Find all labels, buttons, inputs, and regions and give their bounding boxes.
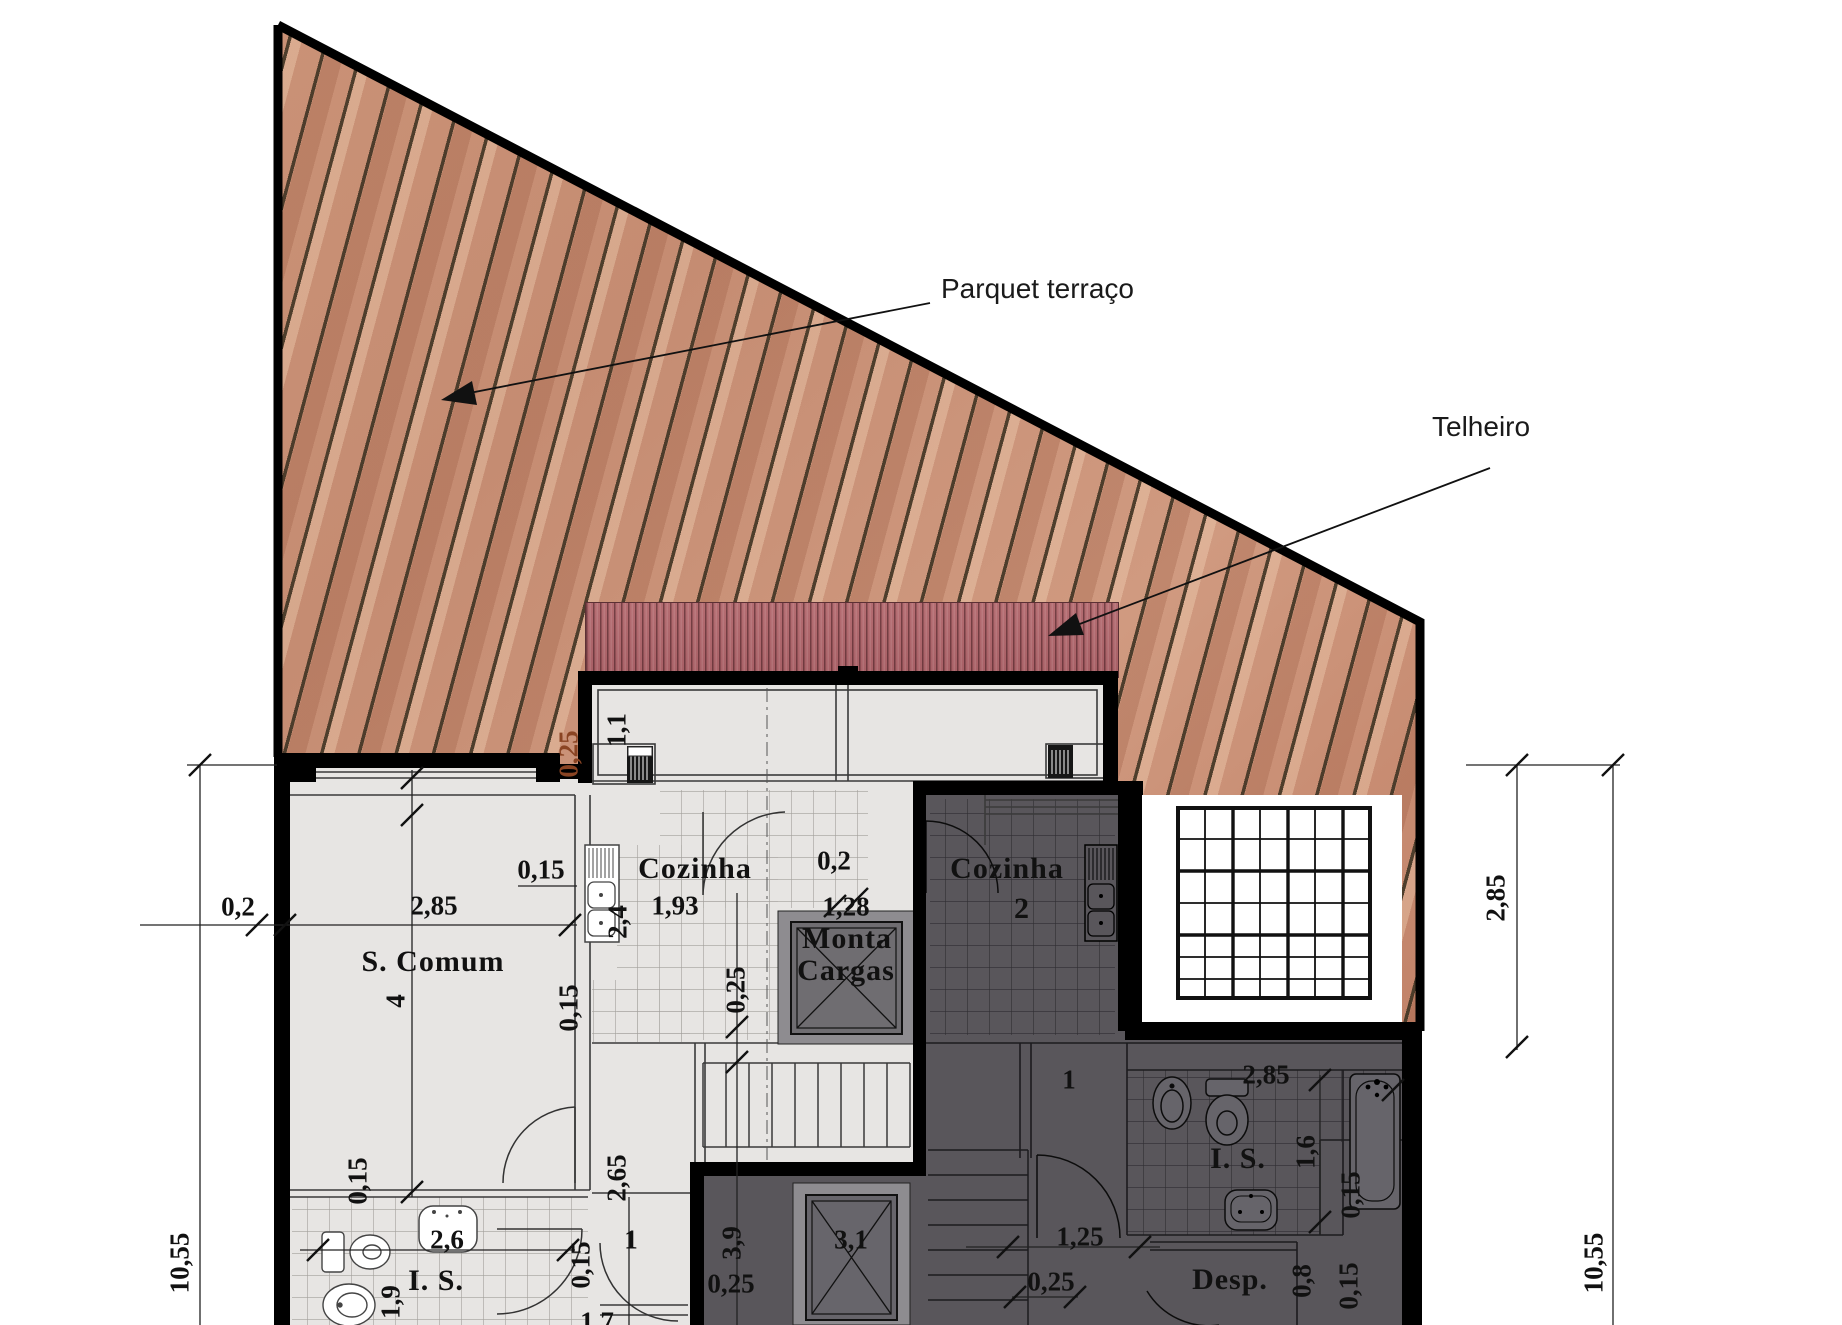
dimension-label: 1,93 bbox=[651, 893, 698, 920]
dimension-label: 2,65 bbox=[604, 1154, 631, 1201]
dimension-label: 2,6 bbox=[430, 1227, 464, 1254]
dimension-label: 10,55 bbox=[1581, 1233, 1608, 1294]
dimension-label: 1,28 bbox=[822, 894, 869, 921]
dimension-label: 1 bbox=[624, 1227, 638, 1254]
dimension-label: 2,4 bbox=[605, 905, 632, 939]
dimension-label: 1,7 bbox=[580, 1309, 614, 1325]
dimension-label: 0,15 bbox=[517, 857, 564, 884]
dimension-label: 0,2 bbox=[817, 848, 851, 875]
dimension-label: 1,6 bbox=[1293, 1135, 1320, 1169]
label-layer: Parquet terraçoTelheiroCozinhaMontaCarga… bbox=[0, 0, 1842, 1325]
dimension-label: 0,15 bbox=[1338, 1171, 1365, 1218]
dimension-label: 0,8 bbox=[1289, 1264, 1316, 1298]
dimension-label: 2,85 bbox=[1483, 874, 1510, 921]
dimension-label: 0,25 bbox=[707, 1271, 754, 1298]
dimension-label: 4 bbox=[383, 994, 410, 1008]
dimension-label: 0,25 bbox=[1027, 1269, 1074, 1296]
dimension-label: 1,9 bbox=[378, 1285, 405, 1319]
dimension-label: 0,25 bbox=[723, 966, 750, 1013]
parquet-terrace-label: Parquet terraço bbox=[941, 275, 1134, 303]
dimension-label: 0,15 bbox=[568, 1241, 595, 1288]
dimension-label: 1,25 bbox=[1056, 1224, 1103, 1251]
dimension-label: 0,15 bbox=[1336, 1262, 1363, 1309]
dimension-label: 3,1 bbox=[834, 1227, 868, 1254]
room-label-s-comum: S. Comum bbox=[361, 947, 504, 977]
dimension-label: 0,2 bbox=[221, 894, 255, 921]
dimension-label: 3,9 bbox=[719, 1226, 746, 1260]
room-label-is-2: I. S. bbox=[1210, 1144, 1266, 1174]
room-number-2: 2 bbox=[1014, 894, 1030, 924]
floor-plan-canvas: Parquet terraçoTelheiroCozinhaMontaCarga… bbox=[0, 0, 1842, 1325]
room-label-cargas: Cargas bbox=[797, 956, 895, 986]
dimension-label: 1 bbox=[1062, 1067, 1076, 1094]
dimension-label: 2,85 bbox=[410, 893, 457, 920]
dimension-label: 0,15 bbox=[556, 984, 583, 1031]
dimension-label: 1,1 bbox=[604, 713, 631, 747]
room-label-cozinha-1: Cozinha bbox=[638, 854, 752, 884]
room-label-desp: Desp. bbox=[1192, 1265, 1268, 1295]
room-label-monta: Monta bbox=[802, 924, 892, 954]
room-label-is-1: I. S. bbox=[408, 1266, 464, 1296]
room-label-cozinha-2: Cozinha bbox=[950, 854, 1064, 884]
dimension-label: 0,15 bbox=[345, 1157, 372, 1204]
telheiro-label: Telheiro bbox=[1432, 413, 1530, 441]
dimension-label: 10,55 bbox=[167, 1233, 194, 1294]
dimension-label: 2,85 bbox=[1242, 1062, 1289, 1089]
dimension-label: 0,25 bbox=[556, 730, 583, 777]
